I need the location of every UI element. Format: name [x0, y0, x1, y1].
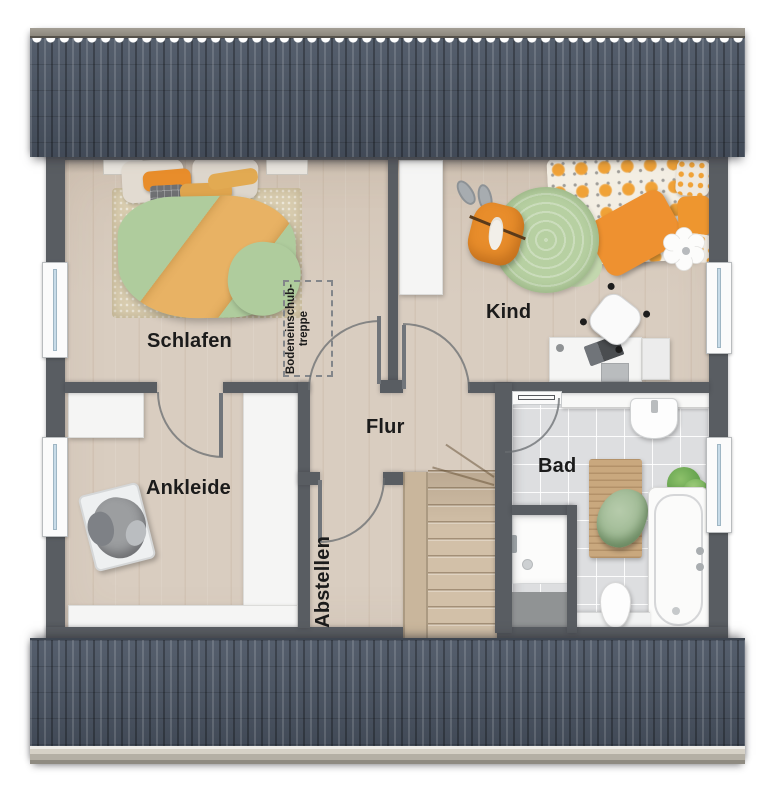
window-glass — [53, 269, 57, 352]
door-leaf-abstellen — [318, 480, 322, 542]
wall-schlafen-ankleide-a — [65, 382, 157, 393]
desk-return — [642, 338, 670, 380]
bathtub — [648, 487, 709, 634]
window-bad — [706, 437, 732, 533]
desk-cup — [556, 344, 564, 352]
roof-top — [30, 28, 745, 157]
bathtub-faucet — [696, 547, 704, 555]
staircase — [428, 470, 497, 638]
wall-schlafen-kind-cap — [380, 380, 403, 393]
wall-ankleide-flur — [298, 382, 310, 628]
attic-hatch-label-line1: Bodeneinschub- — [285, 284, 297, 374]
attic-hatch-label: Bodeneinschub- treppe — [285, 284, 310, 374]
window-glass — [717, 444, 721, 527]
room-label-kind: Kind — [486, 301, 531, 324]
wall-shower-right — [567, 505, 577, 633]
wardrobe-top — [68, 390, 144, 438]
room-label-schlafen: Schlafen — [147, 330, 232, 353]
wall-flur-abstellen-a — [298, 472, 320, 485]
wardrobe-right — [243, 389, 298, 609]
wall-schlafen-kind — [388, 150, 398, 382]
roof-bottom — [30, 638, 745, 764]
roof-gutter — [30, 749, 745, 764]
window-glass — [717, 268, 721, 347]
window-kind — [706, 262, 732, 354]
room-label-bad: Bad — [538, 455, 576, 478]
wall-exterior-right — [709, 150, 728, 645]
roof-tiles-bottom — [30, 638, 745, 746]
window-ankleide — [42, 437, 68, 537]
attic-hatch-label-line2: treppe — [298, 311, 310, 346]
wall-flur-abstellen-cap — [383, 472, 403, 485]
wardrobe-kind — [399, 160, 443, 295]
flower-side-table — [661, 227, 707, 271]
shower-tray — [512, 514, 569, 584]
wall-shower-top — [512, 505, 572, 515]
door-leaf-schlafen — [377, 316, 381, 384]
door-leaf-ankleide — [219, 393, 223, 457]
floorplan-canvas: Bodeneinschub- treppe — [0, 0, 775, 796]
room-label-abstellen: Abstellen — [312, 536, 335, 628]
roof-scallop-edge — [30, 38, 745, 47]
drawer-unit — [601, 363, 629, 382]
door-leaf-kind — [402, 325, 406, 389]
faucet-icon — [651, 400, 658, 413]
shower-drain — [522, 559, 533, 570]
roof-tiles-top — [30, 38, 745, 157]
roof-ridge-cap — [30, 28, 745, 38]
bathtub-drain — [672, 607, 680, 615]
pillow-dotted — [675, 159, 711, 197]
room-label-abstellen-text: Abstellen — [312, 536, 335, 628]
window-schlafen — [42, 262, 68, 358]
wall-exterior-left — [46, 150, 65, 645]
bathtub-inner — [654, 494, 703, 626]
washbasin — [630, 398, 678, 439]
room-label-ankleide: Ankleide — [146, 477, 231, 500]
window-glass — [53, 444, 57, 530]
stair-banister — [403, 472, 428, 638]
room-label-flur: Flur — [366, 416, 405, 439]
wall-schlafen-ankleide-b — [223, 382, 310, 393]
